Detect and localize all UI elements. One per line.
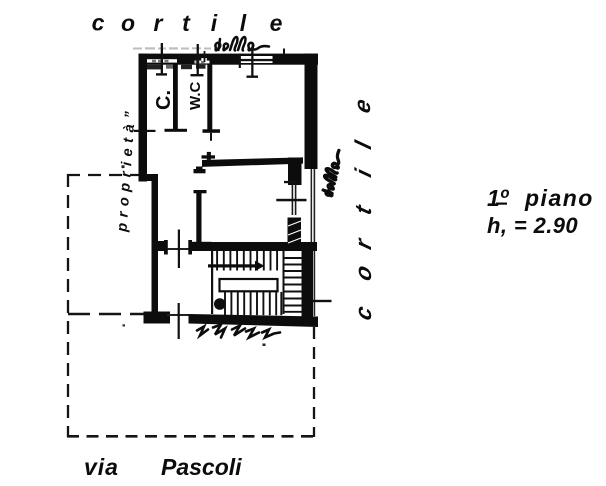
svg-text:W.C: W.C xyxy=(187,82,204,110)
svg-text:i: i xyxy=(211,10,218,36)
svg-text:l: l xyxy=(240,10,247,36)
svg-text:C.: C. xyxy=(153,90,175,110)
svg-text:Pascoli: Pascoli xyxy=(161,454,242,480)
svg-text:t: t xyxy=(182,10,191,36)
svg-text:1º: 1º xyxy=(487,185,510,211)
svg-text:r: r xyxy=(154,10,164,36)
svg-text:piano: piano xyxy=(524,185,594,211)
svg-text:via: via xyxy=(84,454,119,480)
svg-text:c: c xyxy=(92,10,105,36)
svg-text:o: o xyxy=(121,10,135,36)
svg-text:h, = 2.90: h, = 2.90 xyxy=(487,213,578,238)
svg-text:e: e xyxy=(270,10,283,36)
